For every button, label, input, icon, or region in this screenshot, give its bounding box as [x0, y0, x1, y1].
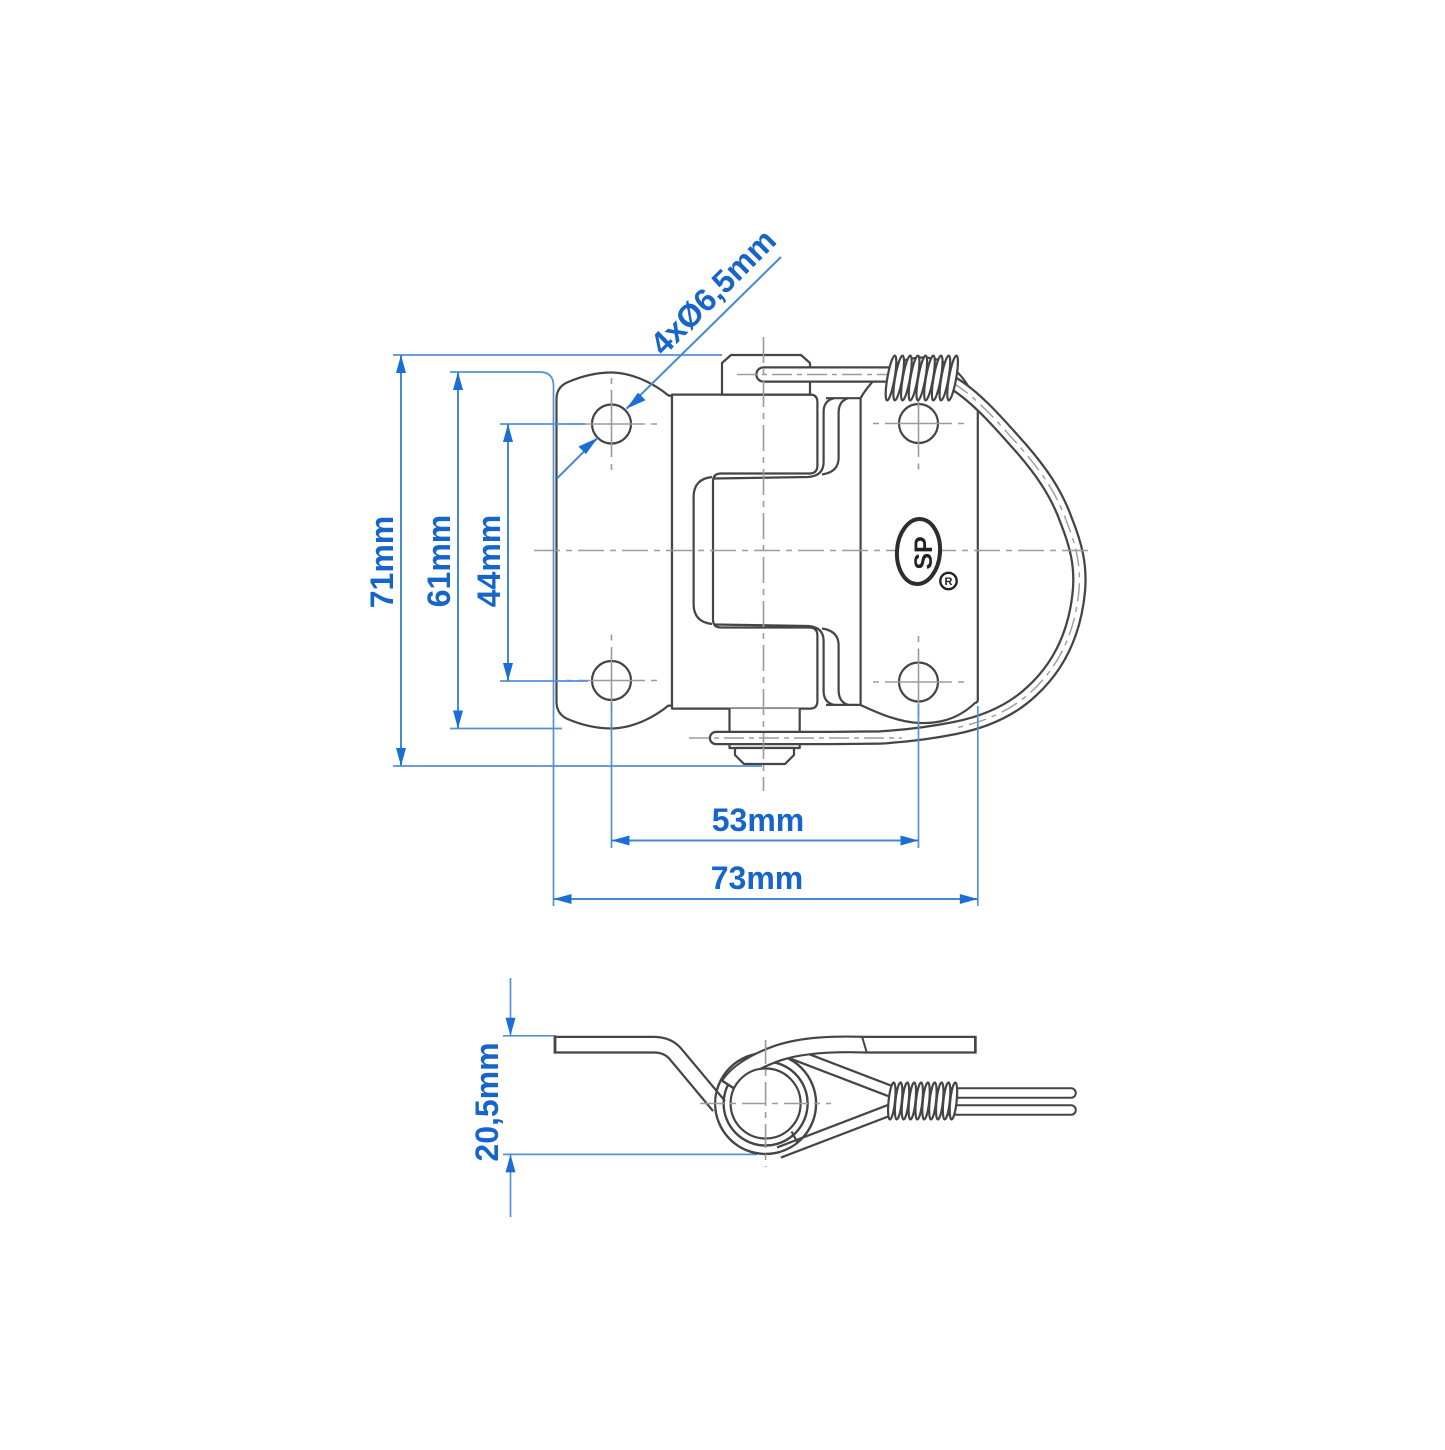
svg-text:44mm: 44mm: [471, 515, 507, 608]
svg-text:20,5mm: 20,5mm: [469, 1042, 505, 1161]
svg-text:53mm: 53mm: [712, 802, 805, 838]
svg-text:73mm: 73mm: [711, 860, 804, 896]
svg-text:61mm: 61mm: [421, 515, 457, 608]
svg-text:SP: SP: [910, 536, 938, 569]
svg-text:R: R: [945, 576, 953, 588]
svg-text:71mm: 71mm: [364, 516, 400, 609]
